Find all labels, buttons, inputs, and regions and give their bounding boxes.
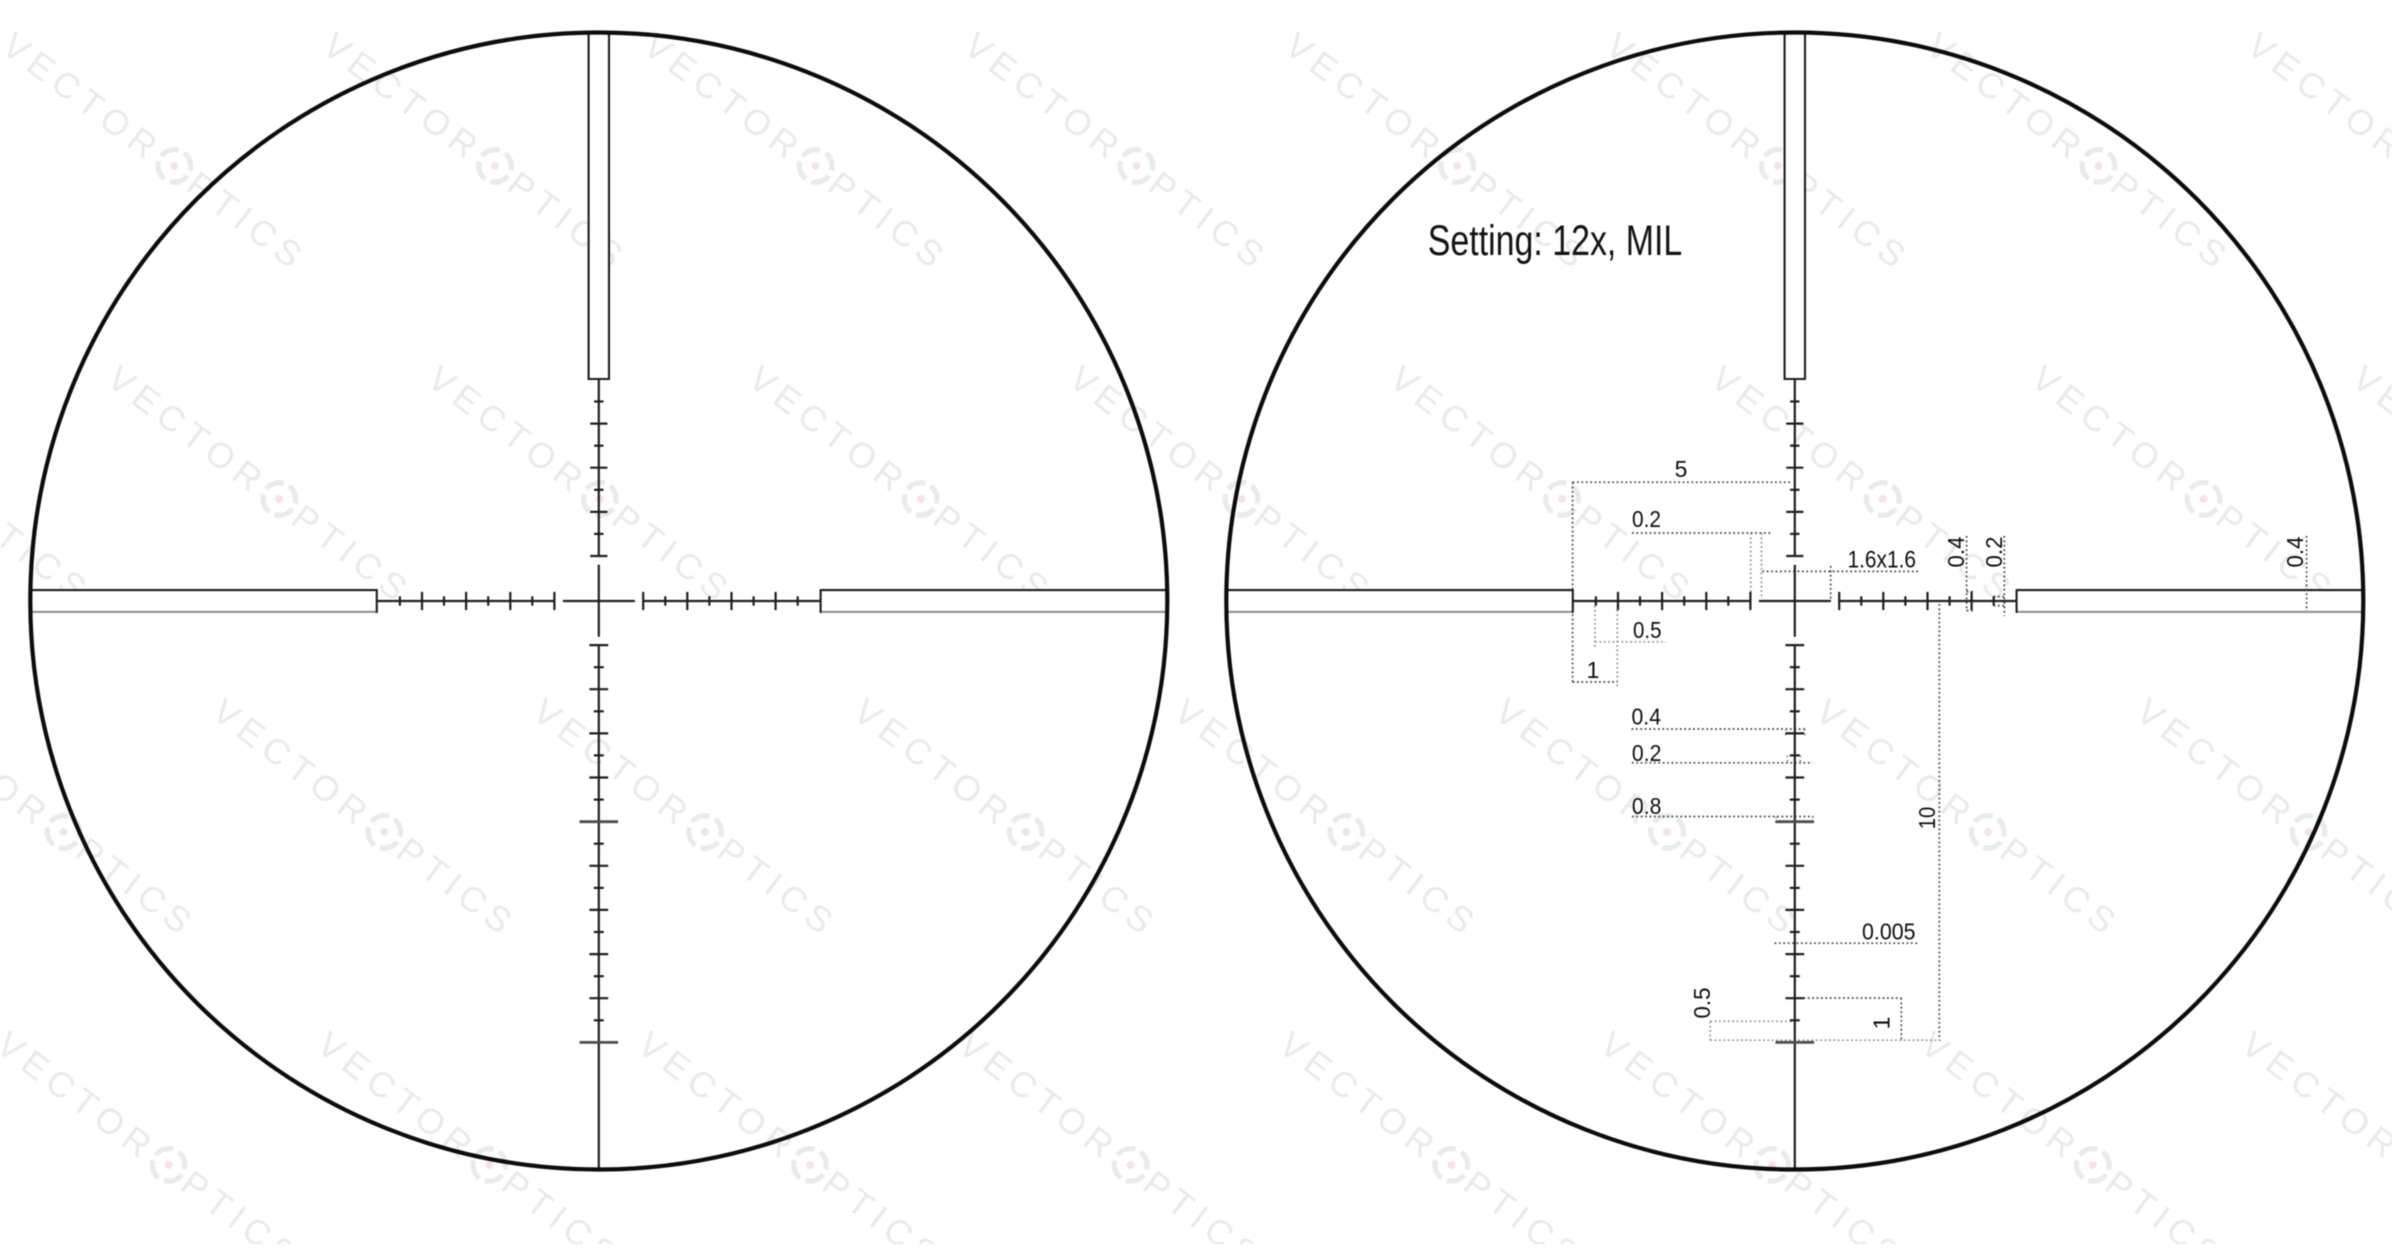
svg-text:0.5: 0.5 [1689,988,1715,1019]
svg-text:0.5: 0.5 [1633,617,1662,643]
svg-text:0.4: 0.4 [1943,536,1969,567]
svg-text:5: 5 [1675,456,1688,482]
svg-text:1: 1 [1587,657,1600,683]
svg-text:10: 10 [1914,807,1940,830]
svg-text:0.2: 0.2 [1981,537,2007,568]
svg-text:0.005: 0.005 [1862,919,1916,945]
svg-text:0.4: 0.4 [1632,704,1662,730]
svg-text:1: 1 [1869,1017,1895,1030]
svg-text:Setting: 12x, MIL: Setting: 12x, MIL [1428,217,1683,265]
svg-text:0.4: 0.4 [2282,536,2308,567]
svg-text:0.2: 0.2 [1632,506,1661,532]
svg-text:1.6x1.6: 1.6x1.6 [1848,547,1917,574]
svg-text:0.8: 0.8 [1632,793,1662,819]
svg-text:0.2: 0.2 [1632,740,1662,766]
